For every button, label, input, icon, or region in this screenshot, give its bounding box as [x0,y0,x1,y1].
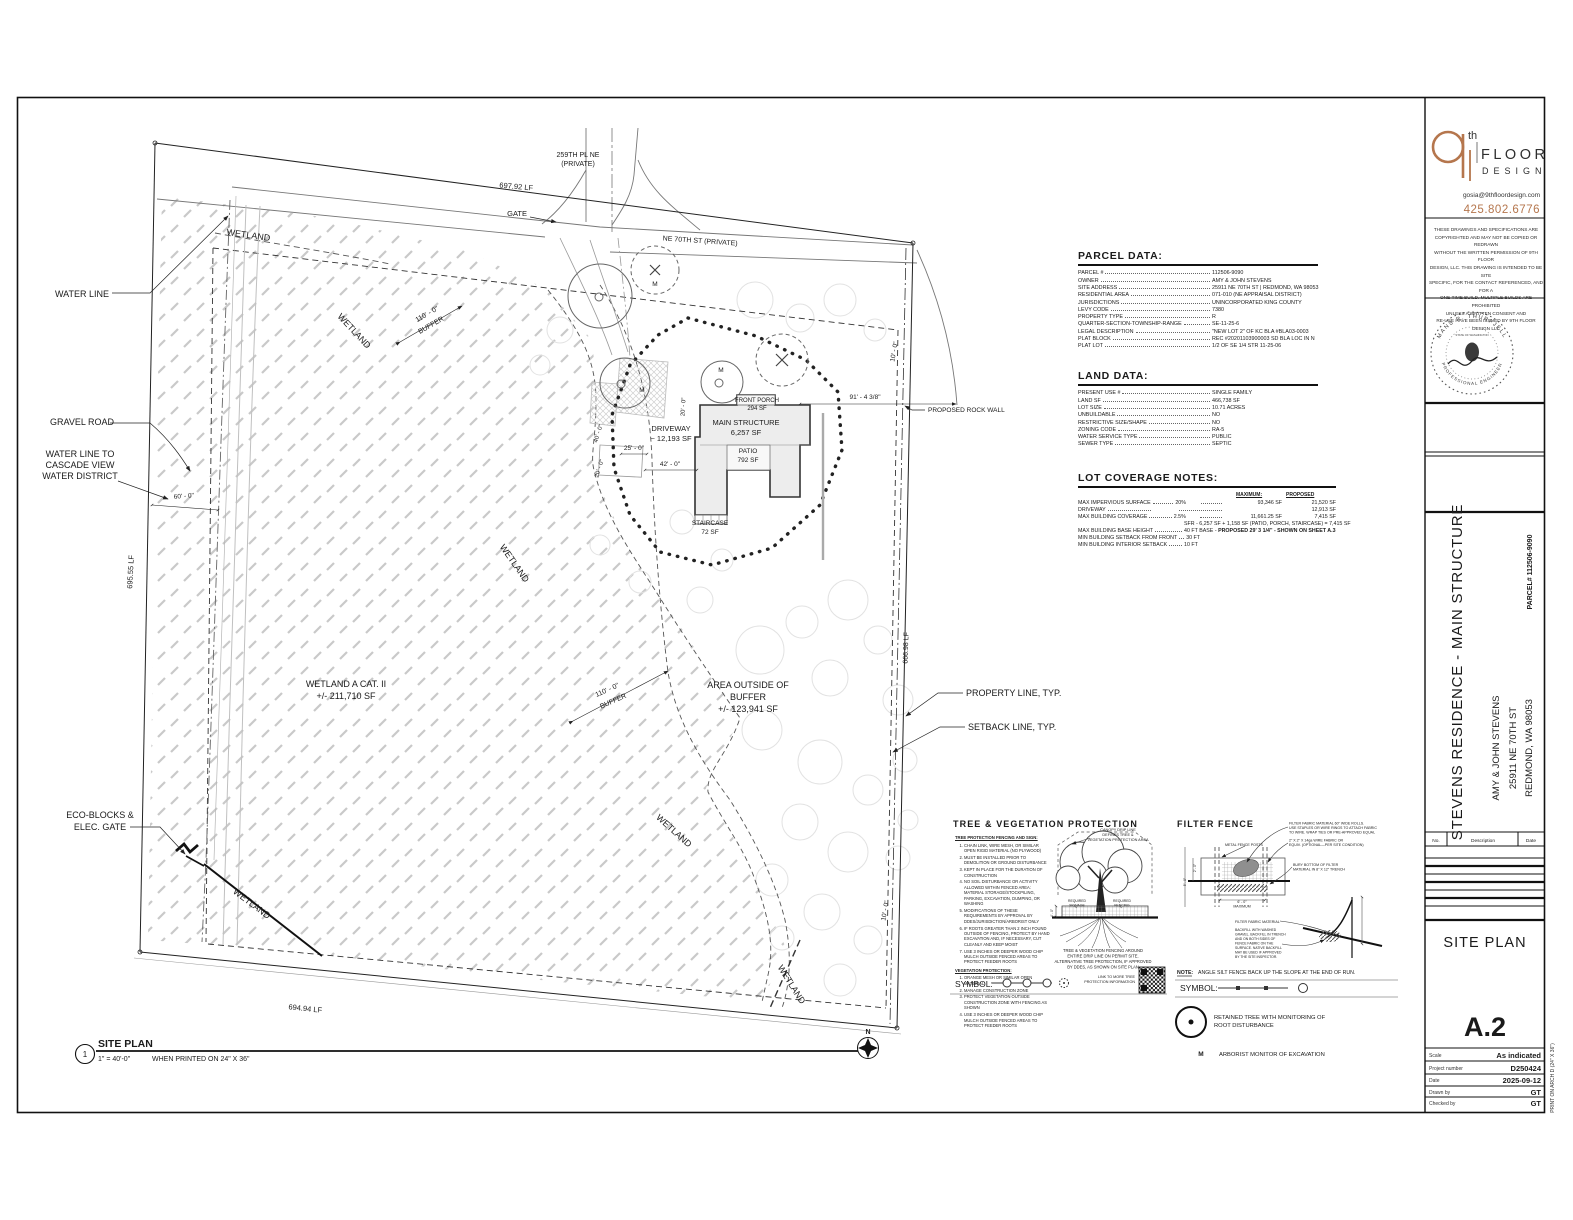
annotation-label: BURY BOTTOM OF FILTER [1293,863,1339,867]
note-item: MODIFICATIONS OF THESE REQUIREMENTS BY A… [964,908,1050,924]
annotation-label: 1" = 40'-0" [98,1056,131,1063]
annotation-label: ENTIRE DRIP LINE ON PERMIT SITE. [1067,954,1138,959]
annotation-label: 25' - 0" [624,445,645,452]
tb-label-scale: Scale [1429,1053,1442,1059]
annotation-label: 91' - 4 3/8" [849,394,881,401]
copyright-notice: THESE DRAWINGS AND SPECIFICATIONS ARECOP… [1428,226,1544,333]
tree-protection-notes: TREE PROTECTION FENCING AND SIGN: CHAIN … [955,832,1050,1030]
annotation-label: 2' - 0" [1193,864,1197,872]
stamp-state: STATE OF WASHINGTON [1455,333,1488,337]
copyright-line: THESE DRAWINGS AND SPECIFICATIONS ARE [1428,226,1544,234]
annotation-label: 294 SF [747,406,767,412]
annotation-label: AND ON BOTH SIDES OF [1235,937,1275,941]
annotation-label: FILTER FENCE [1177,819,1254,829]
land-data-rows: PRESENT USE #SINGLE FAMILYLAND SF466,738… [1078,390,1318,448]
annotation-label: 792 SF [738,457,759,464]
annotation-label: STAIRCASE [692,520,729,527]
logo-floor: FLOOR [1481,147,1548,163]
copyright-line: SPECIFIC, FOR THE CONTACT REFERENCED, AN… [1428,279,1544,294]
annotation-label: M [652,281,657,288]
copyright-line: COPYRIGHTED AND MAY NOT BE COPIED OR RED… [1428,234,1544,249]
annotation-label: 2" X 2" X 14ga WIRE FABRIC OR [1289,839,1343,843]
tb-value-drawn-by: GT [1531,1088,1542,1097]
data-row: RESTRICTIVE SIZE/SHAPENO [1078,420,1318,427]
print-size-note: PRINT ON ARCH D (24" X 36") [1550,1043,1556,1113]
coverage-row: MIN BUILDING INTERIOR SETBACK10 FT [1078,542,1336,549]
annotation-label: 259TH PL NE [557,152,600,159]
annotation-label: +/- 123,941 SF [718,704,778,714]
lot-coverage-headers: MAXIMUM: PROPOSED [1078,492,1336,500]
north-arrow [858,1038,879,1059]
annotation-label: MAIN STRUCTURE [712,418,779,427]
data-row: PLAT LOT1/2 OF SE 1/4 STR 11-25-06 [1078,343,1318,350]
coverage-row: DRIVEWAY12,913 SF [1078,507,1336,514]
note-item: USE 3 INCHES OR DEEPER WOOD CHIP MULCH O… [964,949,1050,965]
tb-value-project-number: D250424 [1511,1064,1542,1073]
coverage-row: MIN BUILDING SETBACK FROM FRONT30 FT [1078,535,1336,542]
annotation-label: SETBACK LINE, TYP. [968,722,1056,732]
copyright-line: RE-USE HAVE BEEN ISSUED BY 9TH FLOOR DES… [1428,317,1544,332]
annotation-label: 60' - 0" [174,492,195,500]
data-row: PRESENT USE #SINGLE FAMILY [1078,390,1318,397]
annotation-label: RETAINED TREE WITH MONITORING OF [1214,1015,1326,1021]
copyright-line: ONE-TIME BUILD. MULTIPLE BUILDS ARE PROH… [1428,294,1544,309]
annotation-label: (PRIVATE) [561,161,595,168]
annotation-label: 72 SF [701,529,718,536]
annotation-label: 42' - 0" [660,461,681,468]
annotation-label: 4' - 0" [1050,909,1054,917]
annotation-label: ARBORIST MONITOR OF EXCAVATION [1219,1052,1325,1058]
annotation-label: 697.92 LF [499,181,534,193]
annotation-label: DRIVEWAY [651,424,690,433]
annotation-label: M [639,387,644,394]
tb-label-checked-by: Checked by [1429,1101,1456,1107]
annotation-label: WHEN PRINTED ON 24" X 36" [152,1056,250,1063]
annotation-label: PROPERTY LINE, TYP. [966,688,1061,698]
tb-value-checked-by: GT [1531,1099,1542,1108]
stamp-title: PROFESSIONAL ENGINEER [1441,362,1504,386]
annotation-label: 5' - 0" [1183,878,1187,886]
brand-email: gosia@9thfloordesign.com [1463,192,1540,199]
annotation-label: WETLAND A CAT. II [306,679,386,689]
logo-design: DESIGN [1482,166,1547,176]
annotation-label: SURFACE. NATIVE BACKFILL [1235,946,1282,950]
parcel-data-panel: PARCEL DATA: PARCEL #112506-9090OWNERAMY… [1078,250,1318,351]
data-row: SITE ADDRESS25911 NE 70TH ST | REDMOND, … [1078,285,1318,292]
annotation-label: MATERIAL IN 8" X 12" TRENCH [1293,868,1345,872]
annotation-label: 666.98 LF [902,632,910,664]
tree-notes-sec2-list: ORANGE MESH OR SIMILAR OPEN MATERIALMANA… [955,975,1050,1028]
note-item: MANAGE CONSTRUCTION ZONE [964,988,1050,993]
site-plan-drawing: th FLOOR DESIGN gosia@9thfloordesign.com… [0,0,1573,1220]
annotation-label: EQUIV. (OPTIONAL—PER SITE CONDITION) [1289,843,1364,847]
annotation-label: REQUIRED [1068,899,1086,903]
col-proposed: PROPOSED [1286,492,1314,498]
coverage-row: MAX BUILDING BASE HEIGHT40 FT BASE - PRO… [1078,528,1336,535]
annotation-label: FRONT PORCH [735,398,779,404]
annotation-label: MAXIMUM [1233,905,1250,909]
annotation-label: 10' - 0" [889,341,900,363]
data-row: OWNERAMY & JOHN STEVENS [1078,278,1318,285]
annotation-label: USE STAPLES OR WIRE RINGS TO ATTACH FABR… [1289,826,1377,830]
coverage-row: MAX IMPERVIOUS SURFACE20%93,346 SF21,520… [1078,500,1336,507]
annotation-label: NE 70TH ST (PRIVATE) [662,235,737,247]
annotation-label: 695.55 LF [125,554,136,589]
client-address2: REDMOND, WA 98053 [1524,699,1535,797]
data-row: WATER SERVICE TYPEPUBLIC [1078,434,1318,441]
note-item: ORANGE MESH OR SIMILAR OPEN MATERIAL [964,975,1050,986]
client-name: AMY & JOHN STEVENS [1491,696,1502,801]
annotation-label: ELEC. GATE [74,822,126,832]
tb-value-scale: As indicated [1496,1051,1541,1060]
divider [1078,264,1318,266]
rev-col-description: Description [1471,838,1495,844]
tb-label-project-number: Project number [1429,1066,1463,1072]
annotation-label: VEGETATION PROTECTION AREA [1087,838,1149,842]
brand-logo: th FLOOR DESIGN gosia@9thfloordesign.com… [1433,130,1548,216]
annotation-label: FENCE FABRIC ON THE [1235,942,1274,946]
note-item: USE 3 INCHES OR DEEPER WOOD CHIP MULCH O… [964,1012,1050,1028]
data-row: JURISDICTIONSUNINCORPORATED KING COUNTY [1078,300,1318,307]
annotation-label: FILTER FABRIC MATERIAL 60" WIDE ROLLS. [1289,822,1364,826]
tree-notes-sec1-list: CHAIN LINK, WIRE MESH, OR SIMILAR OPEN R… [955,843,1050,965]
annotation-label: TO WIRE. WRAP TIES OR PRE-APPROVED EQUAL [1289,831,1375,835]
copyright-line: UNLESS A WRITTEN CONSENT AND [1428,310,1544,318]
annotation-label: SITE PLAN [98,1038,153,1050]
annotation-label: WATER DISTRICT [42,471,118,481]
data-row: ZONING CODERA-5 [1078,427,1318,434]
annotation-label: SIGNAGE [1069,904,1085,908]
project-title: STEVENS RESIDENCE - MAIN STRUCTURE [1449,504,1466,840]
data-row: LOT SIZE10.71 ACRES [1078,405,1318,412]
annotation-label: 6' - 0" [1237,900,1247,904]
copyright-line: WITHOUT THE WRITTEN PERMISSION OF 9TH FL… [1428,249,1544,264]
data-row: PROPERTY TYPER [1078,314,1318,321]
annotation-label: WATER LINE TO [46,449,115,459]
note-item: NO SOIL DISTURBANCE OR ACTIVITY ALLOWED … [964,879,1050,906]
annotation-label: 10' - 0" [880,900,891,922]
annotation-label: SYMBOL: [1180,983,1218,993]
annotation-label: LINK TO MORE TREE [1098,975,1136,979]
titleblock: STEVENS RESIDENCE - MAIN STRUCTURE AMY &… [1429,504,1556,1113]
logo-th: th [1468,130,1477,142]
land-data-title: LAND DATA: [1078,370,1318,382]
lot-coverage-panel: LOT COVERAGE NOTES: MAXIMUM: PROPOSED MA… [1078,472,1336,549]
annotation-label: FILTER FABRIC MATERIAL [1235,920,1280,924]
data-row: PARCEL #112506-9090 [1078,270,1318,277]
note-item: KEPT IN PLACE FOR THE DURATION OF CONSTR… [964,867,1050,878]
qr-code [1139,967,1165,993]
note-item: PROTECT VEGETATION OUTSIDE CONSTRUCTION … [964,994,1050,1010]
tree-notes-sec1-title: TREE PROTECTION FENCING AND SIGN: [955,835,1050,841]
annotation-label: TREE & VEGETATION FENCING AROUND [1063,948,1143,953]
annotation-label: +/- 211,710 SF [316,691,376,701]
brand-phone: 425.802.6776 [1464,204,1540,216]
annotation-label: BY DDES, AS SHOWN ON SITE PLAN [1067,965,1139,970]
data-row: PLAT BLOCKREC #20201103900003 SD BLA LOC… [1078,336,1318,343]
annotation-label: DEFINES TREE & [1102,833,1134,837]
annotation-label: 6,257 SF [731,428,762,437]
note-item: CHAIN LINK, WIRE MESH, OR SIMILAR OPEN R… [964,843,1050,854]
rev-col-date: Date [1526,838,1536,844]
divider [1078,384,1318,386]
site-plan-sheet: { "brand": { "sup": "th", "floor": "FLOO… [0,0,1573,1220]
filter-symbol-row [1218,984,1308,993]
col-maximum: MAXIMUM: [1236,492,1262,498]
copyright-line: DESIGN, LLC. THIS DRAWING IS INTENDED TO… [1428,264,1544,279]
data-row: UNBUILDABLENO [1078,412,1318,419]
annotation-label: CANOPY DRIP LINE [1100,828,1136,832]
annotation-label: ROOT DISTURBANCE [1214,1023,1274,1029]
land-data-panel: LAND DATA: PRESENT USE #SINGLE FAMILYLAN… [1078,370,1318,449]
lot-coverage-title: LOT COVERAGE NOTES: [1078,472,1336,484]
annotation-label: M [718,367,723,374]
parcel-number: PARCEL# 112506-9090 [1527,534,1534,609]
annotation-label: WATER LINE [55,289,109,299]
data-row: RESIDENTIAL AREA071-010 (NE APPRAISAL DI… [1078,292,1318,299]
note-item: MUST BE INSTALLED PRIOR TO DEMOLITION OR… [964,855,1050,866]
note-item: IF ROOTS GREATER THAN 2 INCH FOUND OUTSI… [964,926,1050,948]
annotation-label: AREA OUTSIDE OF [707,680,789,690]
tb-label-drawn-by: Drawn by [1429,1090,1451,1096]
data-row: LEVY CODE7380 [1078,307,1318,314]
annotation-label: CASCADE VIEW [45,460,115,470]
legend-retained-tree [1176,1007,1206,1037]
sheet-name: SITE PLAN [1443,935,1526,951]
annotation-label: ANGLE SILT FENCE BACK UP THE SLOPE AT TH… [1198,970,1355,976]
lot-coverage-rows: MAX IMPERVIOUS SURFACE20%93,346 SF21,520… [1078,500,1336,549]
coverage-note: SFR - 6,257 SF + 1,158 SF (PATIO, PORCH,… [1184,521,1336,528]
annotation-label: ECO-BLOCKS & [66,810,134,820]
annotation-label: ALTERNATIVE TREE PROTECTION, IF APPROVED [1055,959,1152,964]
annotation-label: GATE [507,209,527,218]
data-row: LEGAL DESCRIPTION"NEW LOT 2" OF KC BLA #… [1078,329,1318,336]
annotation-label: 20' - 0" [681,397,688,416]
data-row: SEWER TYPESEPTIC [1078,441,1318,448]
annotation-label: MAY BE USED IF APPROVED [1235,951,1282,955]
tree-protection-detail [1052,831,1158,948]
rev-col-no: No. [1432,838,1439,844]
annotation-label: N [865,1029,870,1036]
parcel-data-rows: PARCEL #112506-9090OWNERAMY & JOHN STEVE… [1078,270,1318,350]
tb-value-date: 2025-09-12 [1503,1076,1541,1085]
parcel-data-title: PARCEL DATA: [1078,250,1318,262]
svg-text:PROFESSIONAL ENGINEER: PROFESSIONAL ENGINEER [1441,362,1504,386]
annotation-label: PROTECTION INFORMATION [1084,980,1135,984]
tb-label-date: Date [1429,1078,1440,1084]
sheet-number: A.2 [1464,1012,1506,1042]
annotation-label: REQUIRED [1113,899,1131,903]
annotation-label: GRAVEL. BACKFILL IN TRENCH [1235,933,1286,937]
annotation-label: BY THE SITE INSPECTOR. [1235,955,1277,959]
tree-notes-sec2-title: VEGETATION PROTECTION: [955,968,1050,974]
annotation-label: BACKFILL WITH WASHED [1235,928,1277,932]
logo-9-icon [1433,132,1463,162]
client-address1: 25911 NE 70TH ST [1508,707,1519,789]
annotation-label: PROPOSED ROCK WALL [928,407,1005,414]
annotation-label: GRAVEL ROAD [50,417,115,427]
annotation-label: ~ 12,193 SF [650,434,691,443]
annotation-label: NOTE: [1177,970,1193,976]
wetland-hatch [148,196,786,1002]
annotation-label: METAL FENCE POSTS [1225,843,1264,847]
annotation-label: FENCING [1114,904,1130,908]
annotation-label: 1 [83,1050,88,1059]
annotation-label: 694.94 LF [288,1002,323,1015]
annotation-label: PATIO [739,448,758,455]
data-row: LAND SF466,738 SF [1078,398,1318,405]
coverage-row: MAX BUILDING COVERAGE2.5%11,661.25 SF7,4… [1078,514,1336,521]
divider [1078,486,1336,488]
annotation-label: M [1198,1051,1203,1058]
data-row: QUARTER-SECTION-TOWNSHIP-RANGESE-11-25-6 [1078,321,1318,328]
annotation-label: BUFFER [730,692,767,702]
stamp-portrait [1465,343,1479,362]
